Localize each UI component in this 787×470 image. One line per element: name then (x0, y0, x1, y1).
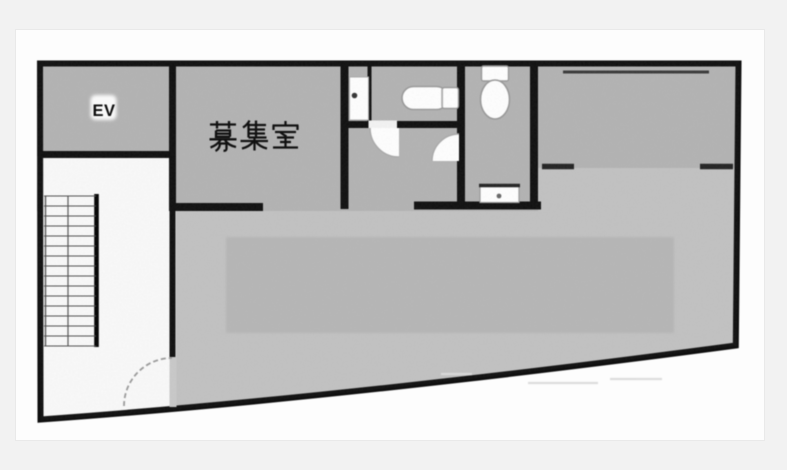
svg-text:EV: EV (92, 102, 115, 120)
